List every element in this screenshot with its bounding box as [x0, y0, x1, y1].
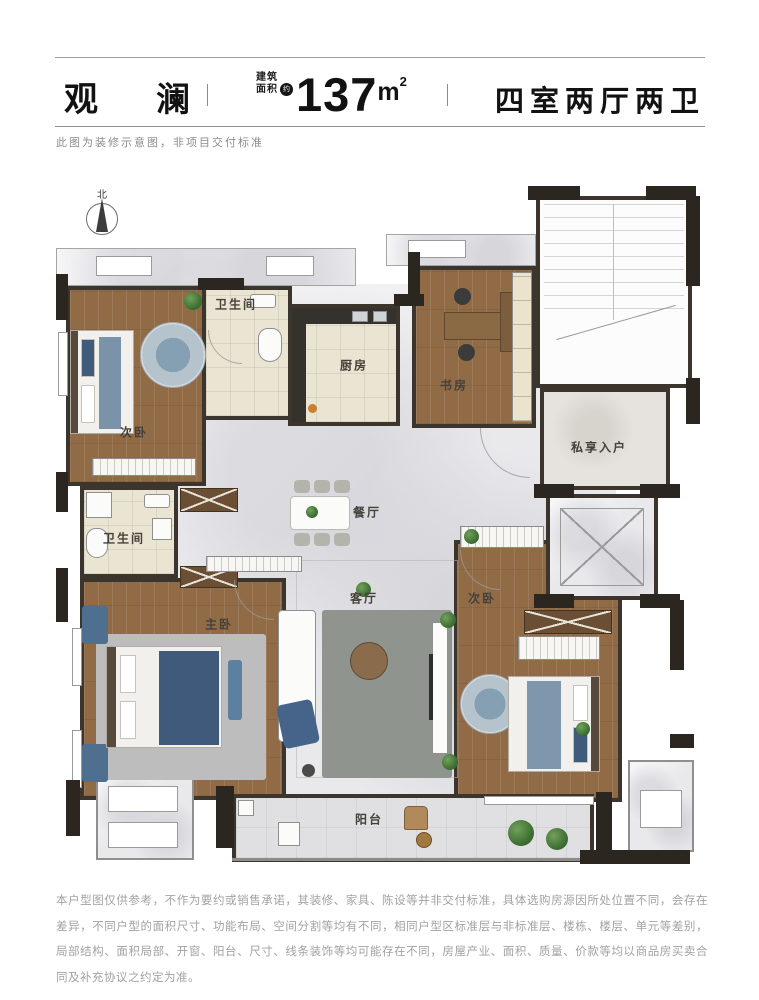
- room-label-bedroom-north: 次卧: [120, 424, 148, 441]
- dining-chair: [294, 533, 310, 546]
- area-label-line2: 面积: [256, 84, 278, 96]
- room-label-study: 书房: [440, 377, 468, 394]
- wall: [670, 734, 694, 748]
- bed-pillow: [120, 701, 136, 739]
- office-chair: [458, 344, 475, 361]
- room-label-living: 客厅: [350, 590, 378, 607]
- area-label-line1: 建筑: [256, 72, 278, 84]
- washing-machine: [278, 822, 300, 846]
- elevator-x-icon: [560, 508, 644, 586]
- bed-blanket: [159, 651, 219, 745]
- floorplan: 北: [56, 182, 704, 880]
- area-group: 建筑 面积 约 137 m2: [256, 58, 407, 118]
- dining-chair: [294, 480, 310, 493]
- wall: [66, 780, 80, 836]
- room-label-bathroom-west: 卫生间: [103, 530, 145, 547]
- dining-table: [290, 496, 350, 530]
- washing-machine: [152, 518, 172, 540]
- wall: [56, 274, 68, 320]
- bed-headboard: [591, 677, 599, 771]
- plant-icon: [440, 612, 456, 628]
- window: [96, 256, 152, 276]
- area-unit-sup: 2: [400, 74, 407, 89]
- compass: 北: [82, 186, 122, 235]
- header-rule-bottom: [55, 126, 705, 127]
- bed-pillow: [81, 385, 95, 423]
- wall: [528, 186, 580, 200]
- project-name: 观 澜: [64, 72, 202, 121]
- room-elevator: [546, 494, 658, 600]
- bed-bench: [228, 660, 242, 720]
- sink: [144, 494, 170, 508]
- room-label-balcony: 阳台: [355, 811, 383, 828]
- area-value: 137: [296, 71, 377, 118]
- wall: [670, 600, 684, 670]
- dining-chair: [314, 533, 330, 546]
- floor-lamp-icon: [302, 764, 315, 777]
- accent-rug: [82, 606, 108, 644]
- coffee-table: [350, 642, 388, 680]
- ac-unit: [108, 786, 178, 812]
- area-approx-badge: 约: [280, 83, 293, 96]
- table-plant-icon: [306, 506, 318, 518]
- bed: [106, 646, 222, 748]
- wall: [216, 786, 234, 848]
- bed-headboard: [107, 647, 116, 747]
- room-label-master-bedroom: 主卧: [205, 616, 233, 633]
- room-label-dining: 餐厅: [353, 504, 381, 521]
- wall: [686, 378, 700, 424]
- wall: [534, 484, 574, 498]
- plant-icon: [546, 828, 568, 850]
- floorplan-page: 观 澜 建筑 面积 约 137 m2 四室两厅两卫 此图为装修示意图，非项目交付…: [0, 0, 759, 1000]
- closet: [180, 488, 238, 512]
- plant-icon: [576, 722, 590, 736]
- stove-icon: [308, 404, 317, 413]
- bed-blanket: [99, 337, 121, 429]
- balcony-railing: [232, 858, 594, 861]
- ac-unit: [108, 822, 178, 848]
- compass-icon: [86, 203, 118, 235]
- bed: [70, 330, 134, 434]
- stair-divider: [613, 204, 614, 320]
- dining-chair: [334, 533, 350, 546]
- area-unit-base: m: [377, 78, 399, 106]
- wall: [56, 568, 68, 622]
- kitchen-sink: [373, 311, 387, 322]
- bed-pillow: [573, 685, 588, 721]
- toilet: [258, 328, 282, 362]
- window: [640, 790, 682, 828]
- round-rug: [140, 322, 206, 388]
- wall: [580, 850, 690, 864]
- plant-icon: [508, 820, 534, 846]
- closet: [524, 610, 612, 634]
- stair-treads: [544, 204, 684, 320]
- balcony-chair: [404, 806, 428, 830]
- plant-icon: [442, 754, 458, 770]
- wall: [534, 594, 574, 608]
- tv-console: [432, 622, 448, 754]
- accent-rug: [82, 744, 108, 782]
- layout-type: 四室两厅两卫: [495, 78, 705, 120]
- planter-box: [238, 800, 254, 816]
- header-divider-right: [447, 84, 448, 106]
- disclaimer-text: 本户型图仅供参考，不作为要约或销售承诺，其装修、家具、陈设等并非交付标准，具体选…: [56, 889, 708, 991]
- bookshelf: [512, 272, 532, 422]
- wall: [56, 472, 68, 512]
- room-label-private-entry: 私享入户: [571, 439, 627, 456]
- bed-pillow: [120, 655, 136, 693]
- kitchen-counter-left: [292, 308, 306, 422]
- office-chair: [454, 288, 471, 305]
- wardrobe: [518, 636, 600, 660]
- bed-headboard: [71, 331, 78, 433]
- room-label-kitchen: 厨房: [340, 357, 368, 374]
- plant-icon: [184, 292, 202, 310]
- tv-icon: [429, 654, 433, 720]
- wardrobe: [206, 556, 302, 572]
- dresser: [92, 458, 196, 476]
- compass-needle-icon: [96, 198, 108, 232]
- bed-blanket: [527, 681, 561, 769]
- window: [484, 796, 594, 805]
- window: [72, 628, 82, 686]
- dining-chair: [314, 480, 330, 493]
- wall: [686, 196, 700, 286]
- wall: [198, 278, 244, 290]
- dining-chair: [334, 480, 350, 493]
- wall: [408, 252, 420, 298]
- area-label: 建筑 面积: [256, 58, 278, 96]
- room-label-bedroom-east: 次卧: [468, 590, 496, 607]
- room-label-bathroom-north: 卫生间: [215, 296, 257, 313]
- plant-icon: [464, 529, 479, 544]
- kitchen-sink: [352, 311, 368, 322]
- wall: [640, 484, 680, 498]
- balcony-table: [416, 832, 432, 848]
- subtitle: 此图为装修示意图，非项目交付标准: [56, 134, 264, 150]
- area-unit: m2: [377, 74, 406, 107]
- shower: [86, 492, 112, 518]
- window: [58, 332, 68, 396]
- header-divider-left: [207, 84, 208, 106]
- window: [266, 256, 314, 276]
- bed-pillow: [81, 339, 95, 377]
